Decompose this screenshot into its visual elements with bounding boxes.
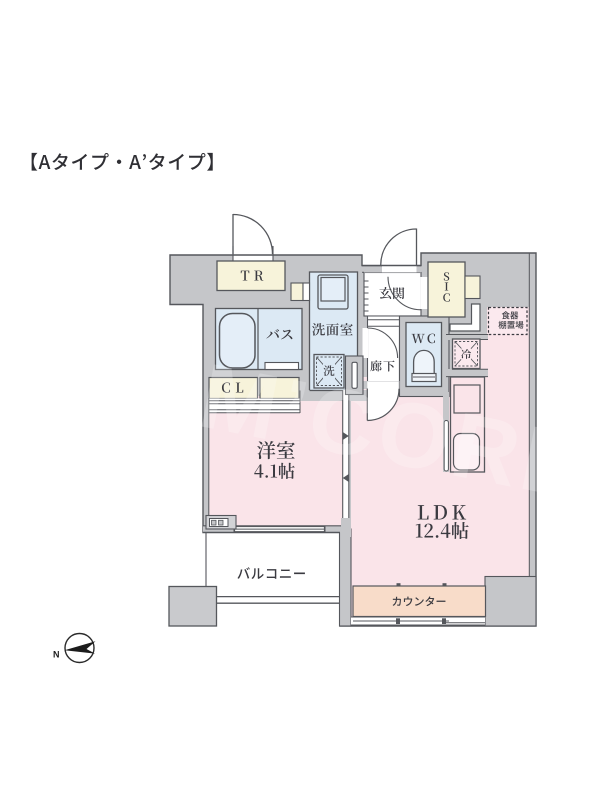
svg-text:N: N: [53, 650, 60, 660]
